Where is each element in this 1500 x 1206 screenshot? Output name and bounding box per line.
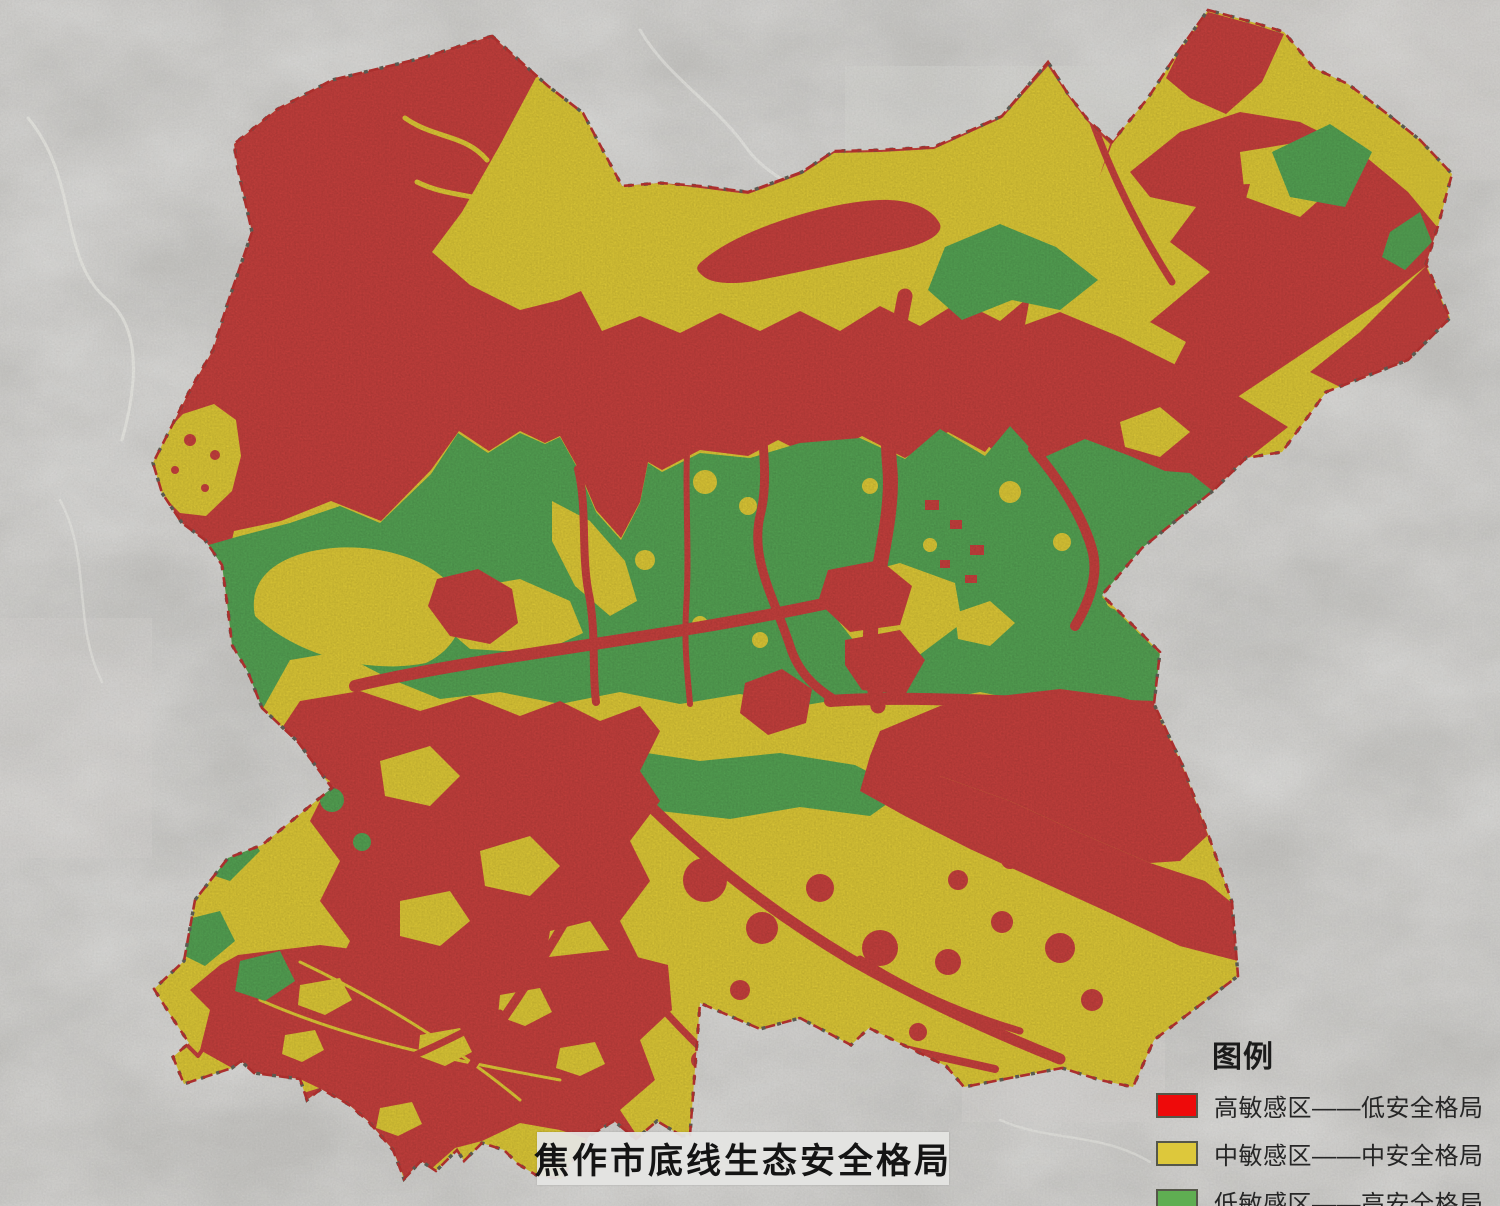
map-title: 焦作市底线生态安全格局 [534, 1133, 952, 1184]
legend-swatch-low-sensitivity [1156, 1189, 1198, 1206]
legend-label: 低敏感区——高安全格局 [1214, 1184, 1484, 1206]
legend: 图例 高敏感区——低安全格局 中敏感区——中安全格局 低敏感区——高安全格局 [1156, 1032, 1500, 1206]
legend-item-medium-sensitivity: 中敏感区——中安全格局 [1156, 1136, 1500, 1171]
grain-overlay [0, 0, 1500, 1206]
legend-item-high-sensitivity: 高敏感区——低安全格局 [1156, 1088, 1500, 1123]
legend-heading: 图例 [1212, 1032, 1500, 1076]
legend-label: 高敏感区——低安全格局 [1214, 1088, 1484, 1123]
legend-swatch-medium-sensitivity [1156, 1141, 1198, 1166]
legend-label: 中敏感区——中安全格局 [1214, 1136, 1484, 1171]
ecological-security-map [0, 0, 1500, 1206]
legend-swatch-high-sensitivity [1156, 1093, 1198, 1118]
map-page: 焦作市底线生态安全格局 图例 高敏感区——低安全格局 中敏感区——中安全格局 低… [0, 0, 1500, 1206]
legend-item-low-sensitivity: 低敏感区——高安全格局 [1156, 1184, 1500, 1206]
map-title-box: 焦作市底线生态安全格局 [537, 1132, 949, 1185]
